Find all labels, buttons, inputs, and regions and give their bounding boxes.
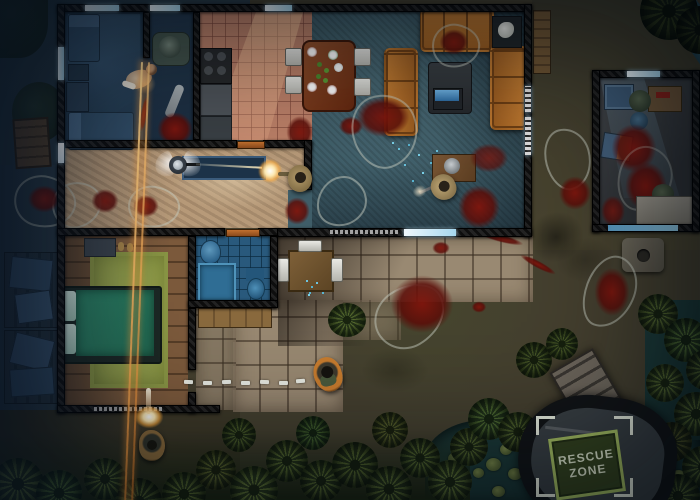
game-map: RESCUE ZONE xyxy=(0,0,700,500)
left-night-tint xyxy=(0,0,170,500)
